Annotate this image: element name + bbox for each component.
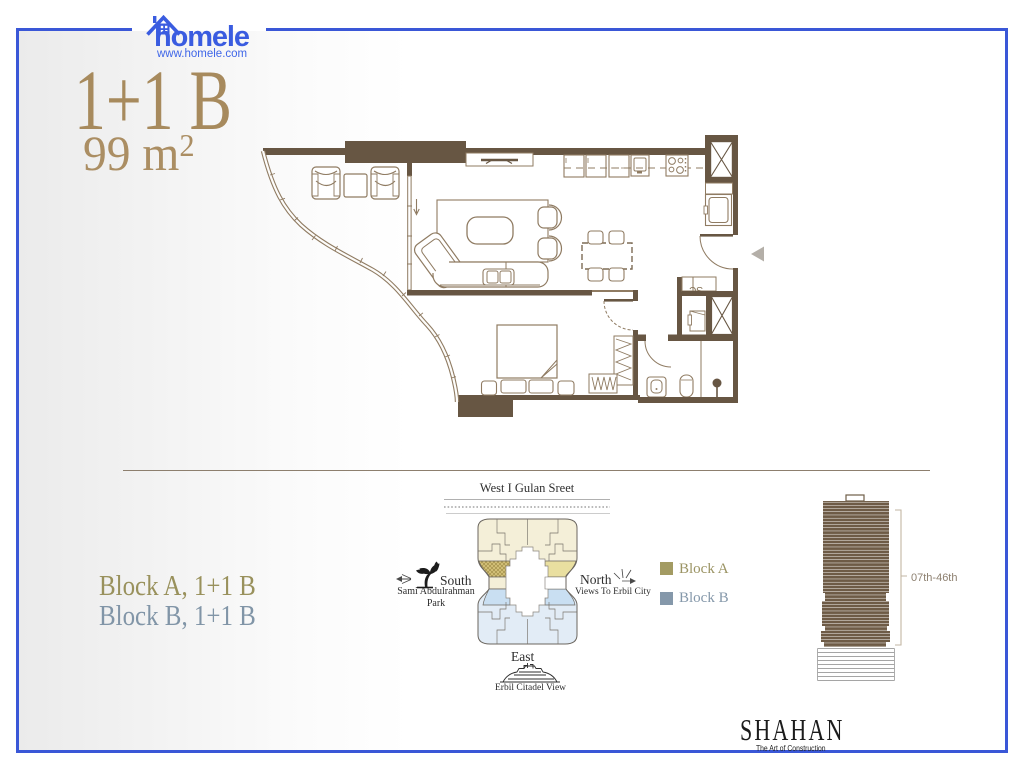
- svg-text:07th-46th: 07th-46th: [911, 572, 957, 584]
